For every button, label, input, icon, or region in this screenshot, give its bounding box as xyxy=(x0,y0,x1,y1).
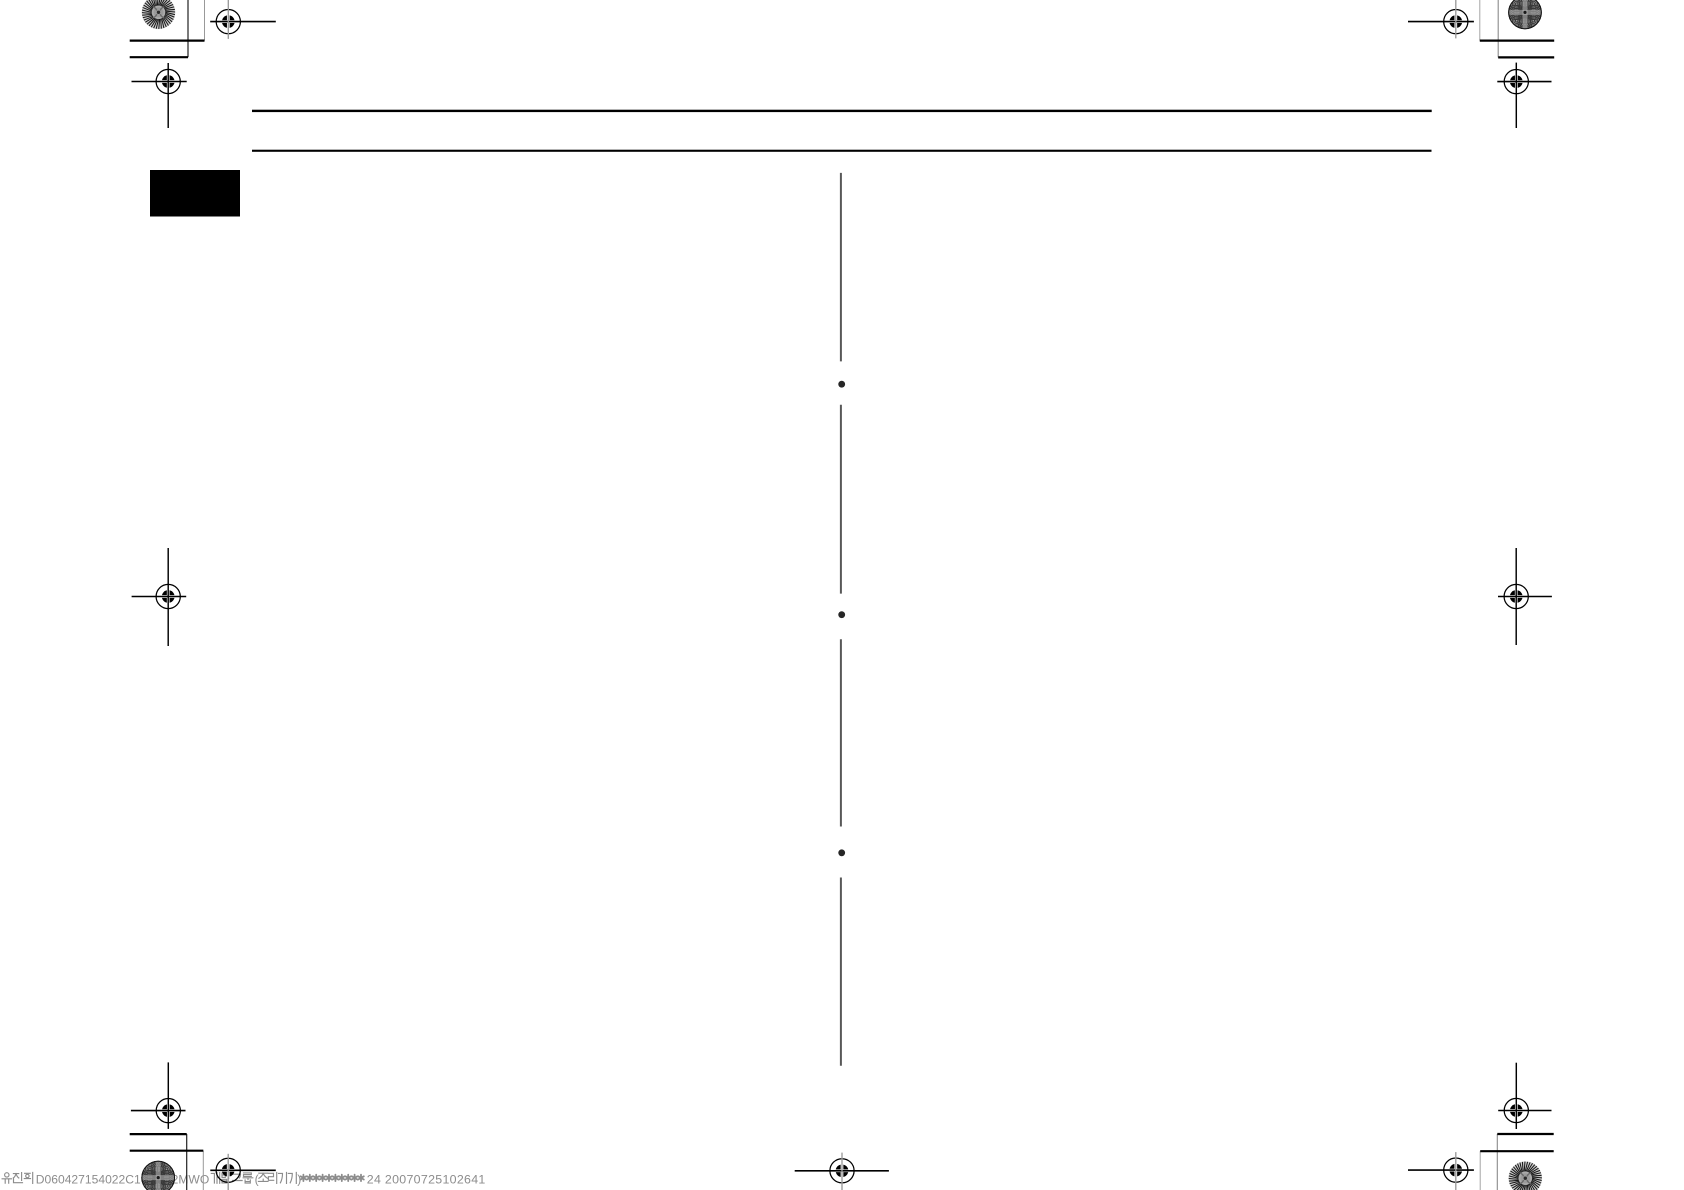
svg-text:(: ( xyxy=(255,1172,259,1186)
svg-text:D060427154022C100-442MWO: D060427154022C100-442MWO xyxy=(36,1172,209,1186)
svg-text:24 20070725102641: 24 20070725102641 xyxy=(367,1173,486,1187)
